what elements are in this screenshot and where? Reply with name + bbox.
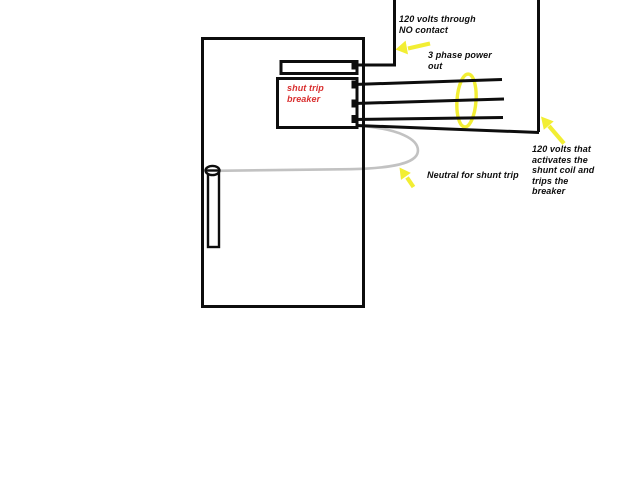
label-no-contact: 120 volts through NO contact [399, 14, 476, 35]
wiring-diagram-svg [0, 0, 640, 480]
arrow-neutral [400, 168, 414, 188]
no-contact-block [281, 62, 357, 74]
neutral-bar [208, 171, 219, 247]
phase-line-2 [354, 99, 504, 104]
terminal-stub-phase-2 [352, 100, 358, 108]
phase-line-3 [354, 118, 503, 120]
label-shunt-trip-breaker: shut trip breaker [287, 83, 324, 104]
terminal-stub-phase-3 [352, 115, 358, 123]
phase-line-1 [354, 80, 502, 85]
neutral-wire-gray [216, 126, 418, 171]
arrow-no-contact [396, 41, 431, 55]
label-neutral-shunt-trip: Neutral for shunt trip [427, 170, 519, 181]
terminal-stub-phase-1 [352, 81, 358, 89]
paint-drawing-canvas: 120 volts through NO contact 3 phase pow… [0, 0, 640, 480]
arrow-shunt-coil [541, 117, 564, 144]
label-three-phase-out: 3 phase power out [428, 50, 492, 71]
terminal-stub-top [352, 62, 358, 70]
label-shunt-coil-description: 120 volts that activates the shunt coil … [532, 144, 594, 197]
